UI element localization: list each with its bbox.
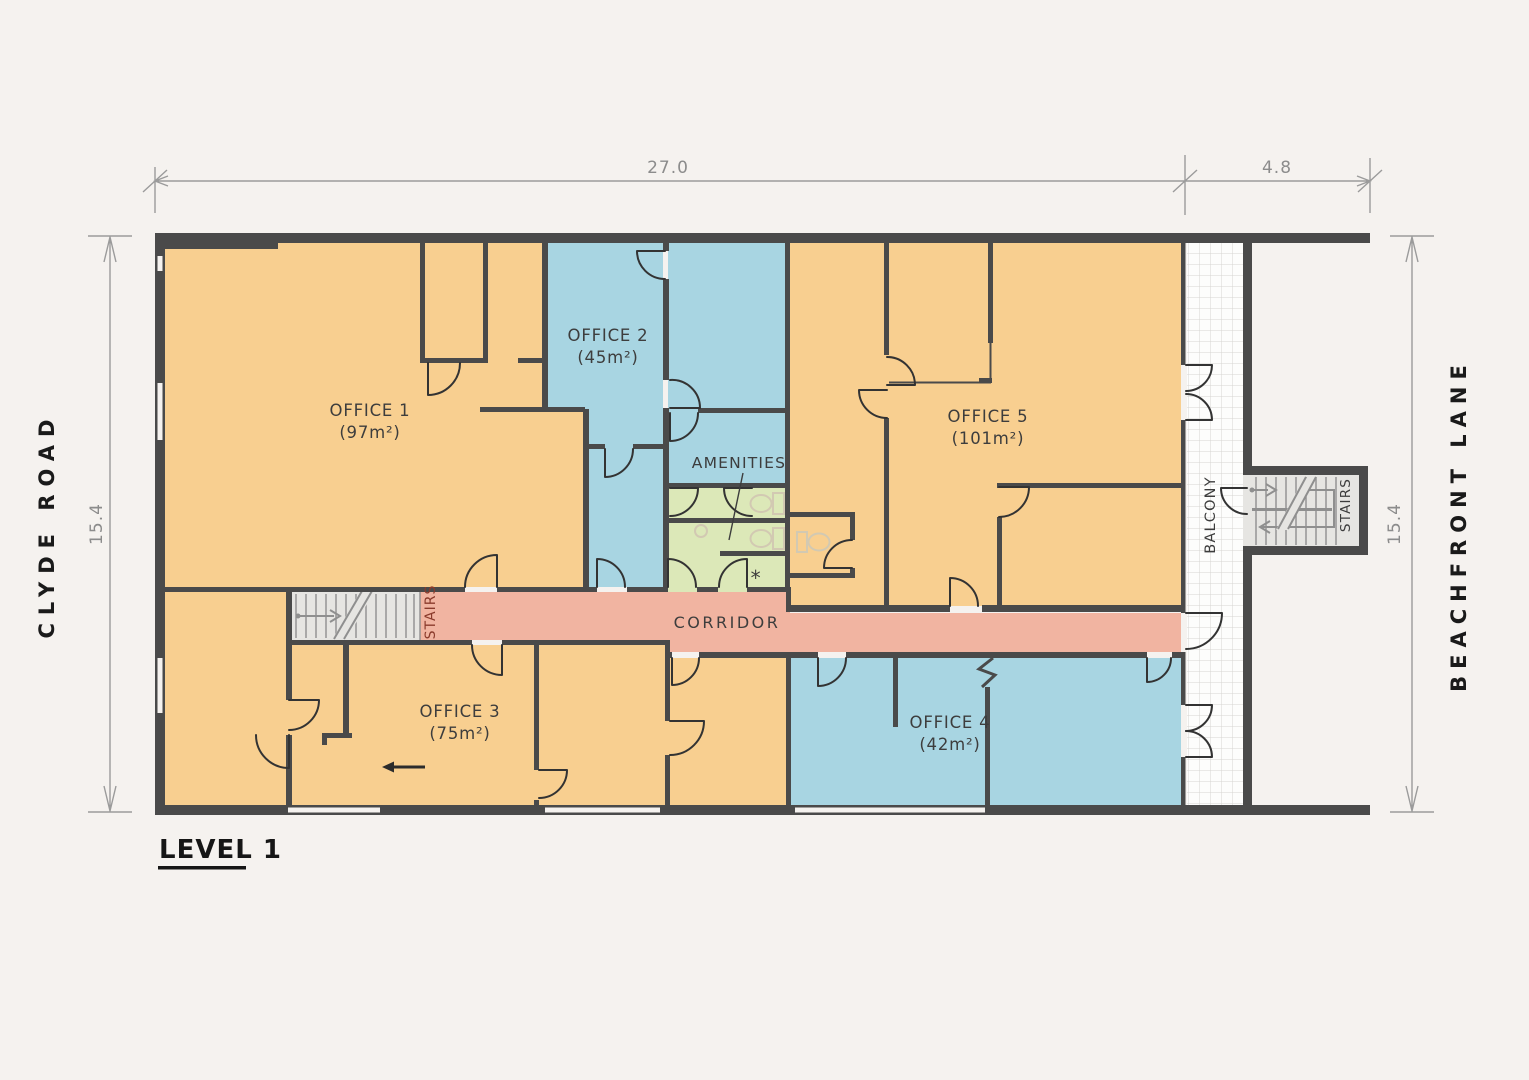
label-office-3-area: (75m²)	[429, 724, 490, 743]
wall-segment	[420, 358, 488, 363]
wall-segment	[155, 233, 165, 815]
wall-segment	[884, 243, 889, 355]
label-office-1-area: (97m²)	[339, 423, 400, 442]
floor-plan-drawing: OFFICE 1 (97m²) OFFICE 2 (45m²) OFFICE 3…	[0, 0, 1529, 1080]
wall-segment	[997, 517, 1002, 606]
wall-segment	[790, 605, 950, 612]
wall-segment	[627, 587, 668, 592]
dim-left-side: 15.4	[87, 503, 107, 545]
label-balcony: BALCONY	[1203, 476, 1219, 554]
label-office-2-area: (45m²)	[577, 348, 638, 367]
wall-segment	[985, 687, 990, 805]
wall-segment	[502, 640, 668, 645]
label-office-4-area: (42m²)	[919, 735, 980, 754]
wall-segment	[542, 243, 548, 409]
wall-segment	[165, 243, 278, 249]
wall-segment	[1243, 546, 1368, 555]
label-amenities: AMENITIES	[692, 454, 786, 472]
floor-plan-page: OFFICE 1 (97m²) OFFICE 2 (45m²) OFFICE 3…	[0, 0, 1529, 1080]
room-meeting-north	[668, 243, 785, 485]
balcony-glass-wall	[1181, 243, 1186, 365]
wall-segment	[663, 243, 669, 251]
window	[288, 808, 380, 813]
wall-segment	[850, 568, 855, 578]
dim-top-right: 4.8	[1262, 158, 1292, 178]
wall-segment	[665, 658, 670, 721]
wall-segment	[497, 587, 597, 592]
wall-segment	[663, 279, 669, 380]
wall-segment	[583, 409, 589, 587]
label-office-4-name: OFFICE 4	[910, 713, 991, 732]
wall-segment	[292, 640, 472, 645]
wall-segment	[534, 645, 539, 770]
wall-segment	[699, 652, 818, 658]
wall-segment	[668, 518, 790, 523]
wall-segment	[1243, 466, 1368, 475]
plan-title: LEVEL 1	[158, 835, 282, 870]
label-stairs-right: STAIRS	[1338, 478, 1354, 532]
label-office-2-name: OFFICE 2	[568, 326, 649, 345]
dim-line-top	[143, 155, 1382, 215]
wall-segment	[534, 800, 539, 805]
wall-segment	[893, 658, 898, 727]
label-stairs-left: STAIRS	[423, 585, 439, 640]
wall-segment	[1243, 555, 1252, 815]
street-left: CLYDE ROAD	[35, 412, 59, 639]
wall-segment	[698, 408, 790, 413]
wall-segment	[155, 233, 1370, 243]
wall-segment	[1243, 233, 1252, 466]
wall-segment	[982, 605, 1181, 612]
wall-segment	[483, 243, 488, 358]
wall-segment	[884, 418, 889, 606]
label-office-3-name: OFFICE 3	[420, 702, 501, 721]
wall-segment	[286, 592, 292, 700]
label-office-5-name: OFFICE 5	[948, 407, 1029, 426]
wall-segment	[697, 587, 718, 592]
label-office-5-area: (101m²)	[952, 429, 1025, 448]
wall-segment	[665, 640, 670, 658]
window	[158, 383, 163, 440]
label-amenities-note: *	[751, 566, 762, 590]
balcony-glass-wall	[1181, 652, 1186, 705]
wall-segment	[343, 640, 349, 735]
window	[795, 808, 985, 813]
wall-segment	[850, 512, 855, 540]
wall-segment	[1359, 466, 1368, 555]
wall-segment	[665, 755, 670, 805]
wall-segment	[165, 587, 465, 592]
wall-segment	[633, 444, 668, 449]
label-office-1-name: OFFICE 1	[330, 401, 411, 420]
dim-right-side: 15.4	[1385, 503, 1405, 545]
label-corridor: CORRIDOR	[674, 613, 781, 632]
wall-segment	[786, 587, 791, 612]
wall-segment	[1172, 652, 1181, 658]
balcony-glass-wall	[1181, 757, 1186, 805]
wall-segment	[785, 243, 790, 587]
window	[545, 808, 660, 813]
wall-segment	[790, 512, 855, 517]
wall-segment	[322, 733, 327, 745]
wall-segment	[420, 243, 425, 358]
window	[158, 256, 163, 271]
balcony-glass-wall	[1181, 420, 1186, 613]
wall-segment	[988, 243, 993, 343]
dim-top-main: 27.0	[647, 158, 689, 178]
wall-segment	[786, 658, 791, 805]
page-title: LEVEL 1	[159, 835, 282, 865]
wall-segment	[720, 551, 790, 556]
street-right: BEACHFRONT LANE	[1447, 358, 1471, 692]
title-underline	[158, 866, 246, 870]
wall-segment	[846, 652, 1147, 658]
window	[158, 658, 163, 713]
wall-segment	[480, 407, 585, 412]
wall-segment	[790, 573, 855, 578]
